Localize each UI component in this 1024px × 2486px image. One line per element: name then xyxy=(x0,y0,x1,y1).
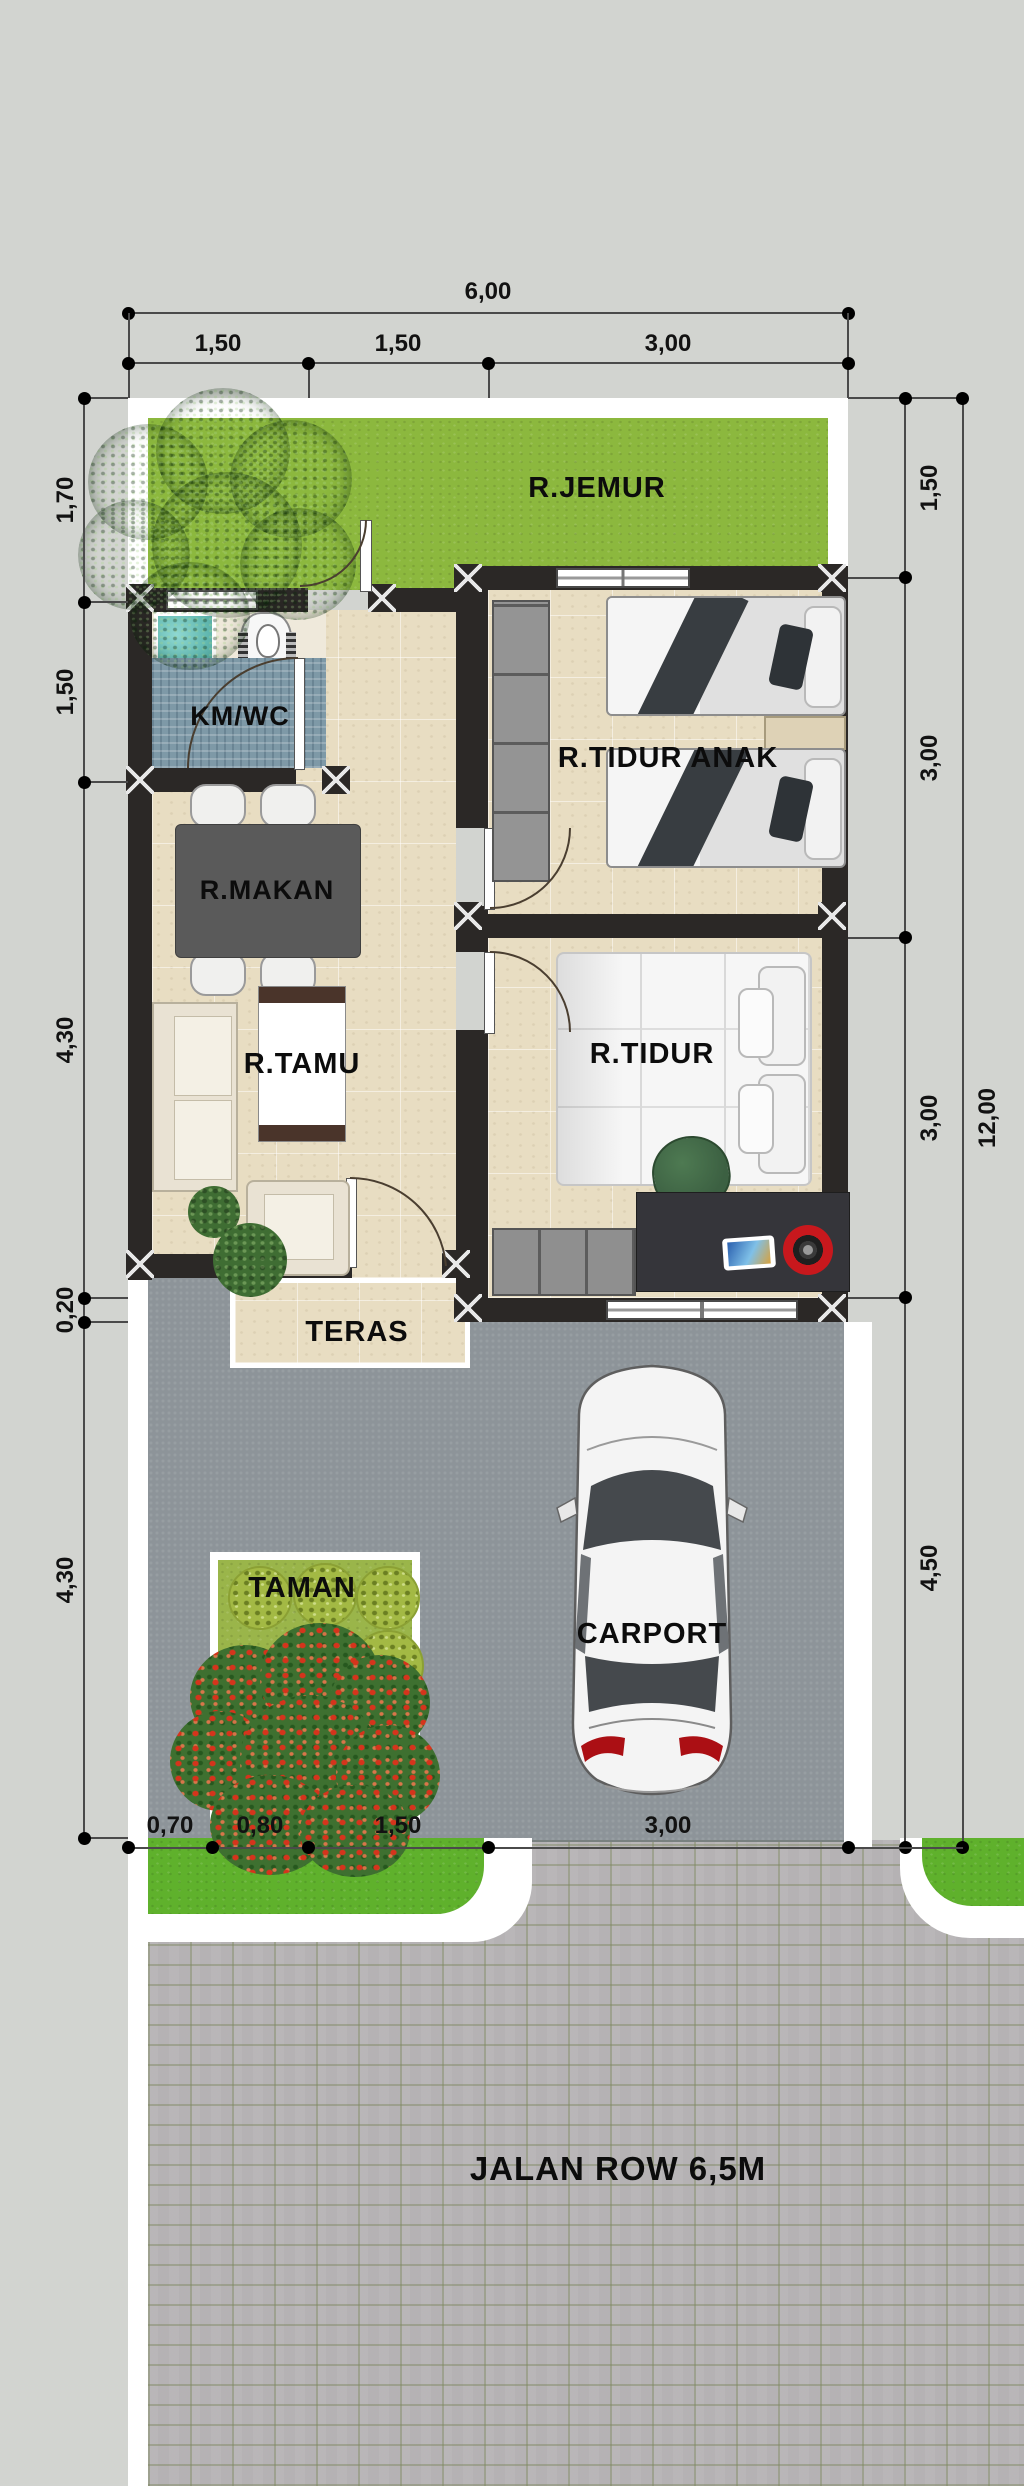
dim-line-right-segments xyxy=(904,398,906,1848)
dim-dot xyxy=(482,1841,495,1854)
dim-dot xyxy=(302,357,315,370)
dim-dot xyxy=(78,596,91,609)
room-label-tamu: R.TAMU xyxy=(222,1048,382,1080)
dim-dot xyxy=(482,357,495,370)
window-front xyxy=(606,1300,798,1320)
dim-connector xyxy=(128,313,130,398)
dim-top-seg-2: 1,50 xyxy=(338,330,458,358)
wall-left-outer xyxy=(128,588,152,1280)
dim-top-seg-1: 1,50 xyxy=(158,330,278,358)
dining-chair xyxy=(260,784,316,828)
tablet-screen xyxy=(727,1240,771,1267)
dim-dot xyxy=(899,571,912,584)
room-label-kmwc: KM/WC xyxy=(160,700,320,732)
wall-junction-icon xyxy=(454,902,482,930)
floor-plan-canvas: R.JEMUR KM/WC R.MAKAN R.TAMU R.TIDUR ANA… xyxy=(0,0,1024,2486)
dim-dot xyxy=(899,931,912,944)
wall-mid-lower xyxy=(456,1030,488,1322)
dim-line-bottom xyxy=(128,1847,963,1849)
single-bed xyxy=(606,596,846,716)
wall-junction-icon xyxy=(442,1250,470,1278)
room-label-tidur-anak: R.TIDUR ANAK xyxy=(538,742,798,774)
bed-pillow xyxy=(738,1084,774,1154)
dining-chair xyxy=(190,952,246,996)
room-label-jemur: R.JEMUR xyxy=(487,472,707,504)
dining-chair xyxy=(190,784,246,828)
speaker-hub xyxy=(803,1245,813,1255)
flowering-tree xyxy=(150,1615,450,1885)
wall-bedroom-divider xyxy=(488,914,848,938)
bed-pillow xyxy=(738,988,774,1058)
dim-bottom-3: 1,50 xyxy=(338,1812,458,1840)
wall-junction-icon xyxy=(454,1294,482,1322)
window-bedroom-anak xyxy=(556,568,690,588)
dim-left-3: 4,30 xyxy=(52,990,80,1090)
dim-left-1: 1,70 xyxy=(52,450,80,550)
sidewalk-curb-right xyxy=(844,1322,872,1848)
room-label-taman: TAMAN xyxy=(222,1572,382,1604)
wall-junction-icon xyxy=(368,584,396,612)
bed-pillow xyxy=(804,606,842,708)
dim-right-3: 3,00 xyxy=(916,1068,944,1168)
room-label-makan: R.MAKAN xyxy=(177,874,357,906)
road-label: JALAN ROW 6,5M xyxy=(388,2150,848,2188)
door-leaf-bedroom xyxy=(484,952,495,1034)
dim-top-seg-3: 3,00 xyxy=(608,330,728,358)
coffee-table-edge xyxy=(259,987,345,1003)
wall-junction-icon xyxy=(126,1250,154,1278)
room-label-carport: CARPORT xyxy=(562,1618,742,1650)
dim-connector xyxy=(848,937,905,939)
dim-dot xyxy=(899,392,912,405)
desk xyxy=(636,1192,850,1292)
dim-dot xyxy=(842,1841,855,1854)
dim-bottom-2: 0,80 xyxy=(200,1812,320,1840)
wardrobe xyxy=(492,600,550,882)
dim-connector xyxy=(847,313,849,398)
dim-dot xyxy=(206,1841,219,1854)
bed-pillow xyxy=(804,758,842,860)
sofa-cushion xyxy=(174,1100,232,1180)
speaker xyxy=(783,1225,833,1275)
dim-left-4: 0,20 xyxy=(52,1260,80,1360)
dim-top-total: 6,00 xyxy=(428,278,548,306)
wall-junction-icon xyxy=(818,902,846,930)
dim-dot xyxy=(78,392,91,405)
dim-connector xyxy=(848,577,905,579)
dim-bottom-4: 3,00 xyxy=(608,1812,728,1840)
tablet xyxy=(722,1235,776,1271)
sofa xyxy=(152,1002,238,1192)
plot-right-band xyxy=(828,398,848,568)
wall-junction-icon xyxy=(818,1294,846,1322)
dim-dot xyxy=(842,357,855,370)
wall-junction-icon xyxy=(818,564,846,592)
dim-right-2: 3,00 xyxy=(916,708,944,808)
dim-dot xyxy=(78,776,91,789)
wall-junction-icon xyxy=(454,564,482,592)
dim-connector xyxy=(848,1297,905,1299)
dim-right-1: 1,50 xyxy=(916,438,944,538)
coffee-table-edge xyxy=(259,1125,345,1141)
dresser-cabinet xyxy=(492,1228,636,1296)
dim-dot xyxy=(302,1841,315,1854)
dim-dot xyxy=(122,1841,135,1854)
room-label-teras: TERAS xyxy=(277,1316,437,1348)
wall-junction-icon xyxy=(322,766,350,794)
door-leaf-jemur xyxy=(360,520,372,592)
dim-right-total: 12,00 xyxy=(974,1068,1002,1168)
dim-line-right-total xyxy=(962,398,964,1848)
pine-tree xyxy=(70,380,360,680)
dim-line-top-total xyxy=(128,312,848,314)
car xyxy=(545,1350,759,1802)
dim-line-left xyxy=(83,398,85,1838)
wall-junction-icon xyxy=(126,766,154,794)
potted-plant xyxy=(213,1223,287,1297)
dim-left-5: 4,30 xyxy=(52,1530,80,1630)
dim-dot xyxy=(122,357,135,370)
wall-mid-upper xyxy=(456,566,488,828)
dim-left-2: 1,50 xyxy=(52,642,80,742)
dim-dot xyxy=(899,1291,912,1304)
dim-dot xyxy=(78,1832,91,1845)
dim-right-4: 4,50 xyxy=(916,1518,944,1618)
room-label-tidur: R.TIDUR xyxy=(572,1038,732,1070)
dim-dot xyxy=(956,392,969,405)
